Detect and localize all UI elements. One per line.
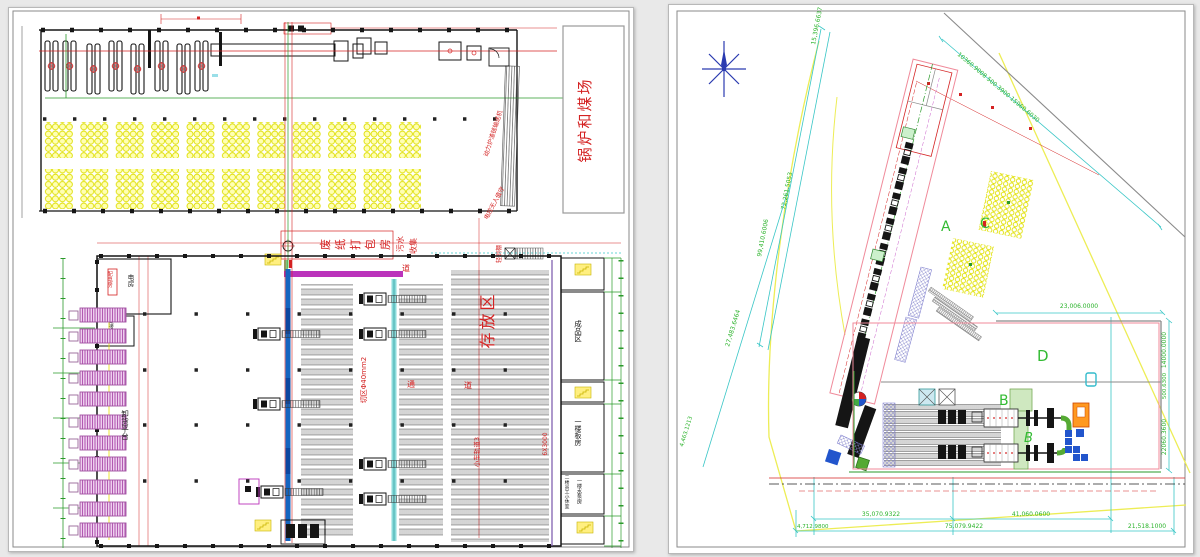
dao-char-2: 道 <box>402 263 410 273</box>
boiler-machines <box>45 30 481 94</box>
dim-left-top: 15,396.6637 <box>810 6 824 45</box>
top-dimension-marks <box>161 14 557 34</box>
dim-sw1: 27,483.6464 <box>724 309 742 348</box>
site-gray-line <box>944 13 1185 237</box>
packing-room-label: 废纸打包房 <box>318 235 392 250</box>
dim-s4: 75,079.9422 <box>945 523 983 530</box>
electric-room-label: 电房 <box>126 273 134 289</box>
slag-conveyor-label: 动力炉渣链输送机 <box>482 109 504 157</box>
side-title-box: 锅炉和煤场 <box>563 26 624 213</box>
building-strip <box>823 59 958 433</box>
sewage-label-1: 污水 <box>395 236 405 252</box>
cad-canvas: 锅炉和煤场 动力炉渣链输送机 电控无人值守 轻钢棚 废纸打包房 污水 收集 道 <box>0 0 1200 557</box>
top-hall <box>22 26 621 218</box>
dim-s2: 41,060.0600 <box>1012 511 1050 518</box>
rest-room-label: 二楼员工小休室 <box>564 475 569 509</box>
truck-dock: 卸货平台 <box>53 258 130 548</box>
pump-room-label: 一楼水泵房 <box>576 478 582 505</box>
north-compass-icon <box>702 41 746 97</box>
storage-area-label: 存放区 <box>478 291 497 348</box>
area-a-label: A <box>941 219 951 235</box>
dim-left-low: 99,410.6006 <box>756 218 770 257</box>
tong-char: 通 <box>407 379 415 389</box>
dim-note-label: 6X3000 <box>542 432 549 455</box>
right-plan-svg: 15,396.6637 72,261.5053 99,410.6006 1036… <box>669 5 1193 553</box>
dim-sw2: 4,463.1213 <box>679 415 694 447</box>
dim-e2: 500.6300 <box>1162 372 1168 399</box>
side-rooms: 成品区 一楼板房 二楼员工小休室 一楼水泵房 <box>552 258 604 546</box>
area-b2-label: B <box>1024 431 1033 446</box>
floor-room-label: 一楼板房 <box>574 418 582 447</box>
dim-left-mid: 72,261.5053 <box>780 171 794 210</box>
unload-platform-label: 卸货平台 <box>120 409 129 442</box>
cart-track-label: 小车轨道3 <box>472 437 481 467</box>
green-dim-chain <box>604 258 621 548</box>
area-b-label: B <box>999 393 1009 409</box>
paper-roll-rows <box>39 122 421 209</box>
production-lines <box>883 373 1096 469</box>
dao-char: 道 <box>464 380 472 390</box>
dim-ne: 23,006.0000 <box>1060 303 1098 310</box>
dim-e3: 22060.3600 <box>1161 419 1168 455</box>
right-drawing-sheet: 15,396.6637 72,261.5053 99,410.6006 1036… <box>668 4 1194 554</box>
dim-s3: 4,712.9800 <box>797 524 829 530</box>
side-title: 锅炉和煤场 <box>576 77 594 162</box>
production-hall: 配电房 电房 交接班室 卸货平台 <box>53 256 621 548</box>
left-drawing-sheet: 锅炉和煤场 动力炉渣链输送机 电控无人值守 轻钢棚 废纸打包房 污水 收集 道 <box>8 7 634 552</box>
sewage-label-2: 收集 <box>408 238 418 254</box>
dim-s1: 35,070.9322 <box>862 511 900 518</box>
dim-top: 10360.9008 500.3900 15960.6030 <box>956 51 1041 124</box>
coal-patches <box>942 171 1034 298</box>
power-room-label: 配电房 <box>106 271 113 289</box>
cut-zone-label: 切区Φ40mm2 <box>360 357 368 404</box>
left-plan-svg: 锅炉和煤场 动力炉渣链输送机 电控无人值守 轻钢棚 废纸打包房 污水 收集 道 <box>9 8 633 551</box>
finished-area-label: 成品区 <box>573 319 582 343</box>
dim-e1: 14000.0000 <box>1161 332 1168 368</box>
area-d-label: D <box>1037 347 1049 365</box>
dim-s5: 21,518.1000 <box>1128 523 1166 530</box>
area-c-label: C <box>980 216 990 232</box>
blue-chain <box>1065 429 1088 461</box>
steel-shed-label: 轻钢棚 <box>495 245 503 263</box>
